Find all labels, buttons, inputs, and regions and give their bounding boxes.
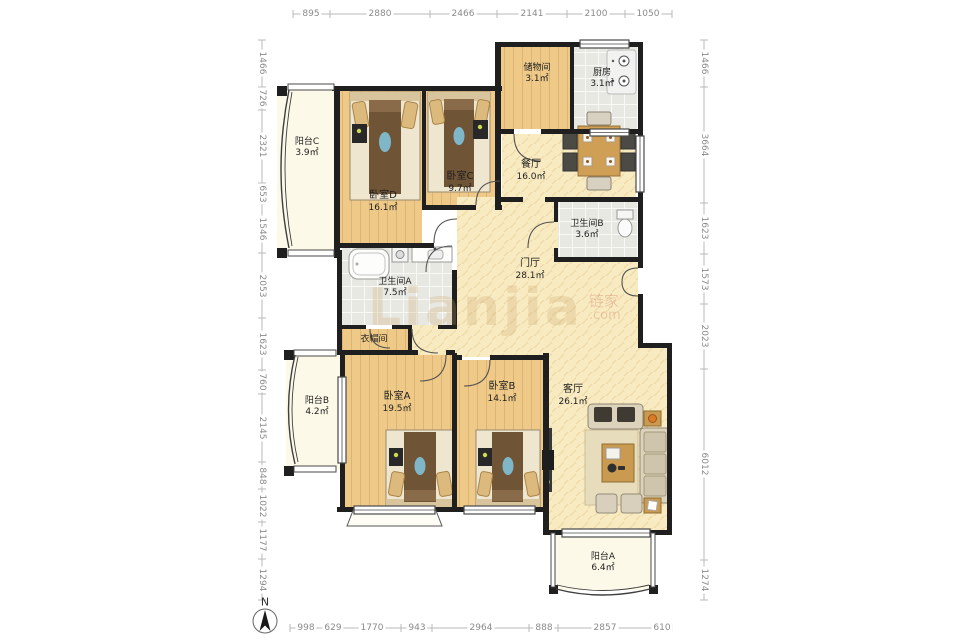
window-icon (464, 506, 535, 514)
window-icon (354, 506, 435, 514)
wall (425, 205, 476, 210)
dimension-label: 2321 (257, 133, 267, 160)
wall (422, 86, 426, 210)
north-label: N (261, 596, 269, 609)
room-label-foyer: 门厅28.1㎡ (515, 258, 544, 282)
dimension-label: 1466 (257, 50, 267, 77)
dimension-label: 2964 (468, 623, 495, 633)
floor-storage (500, 47, 570, 129)
window-icon (580, 40, 629, 48)
wall (337, 350, 418, 355)
room-label-bathroom-b: 卫生间B3.6㎡ (570, 219, 603, 242)
wall (455, 355, 462, 360)
window-icon (288, 250, 334, 256)
wall (490, 355, 548, 360)
wall (438, 325, 457, 329)
wall (570, 42, 574, 134)
room-label-bathroom-a: 卫生间A7.5㎡ (378, 277, 411, 300)
dimension-label: 760 (257, 371, 267, 392)
washing-machine-icon (392, 247, 408, 262)
window-icon (294, 350, 336, 356)
dimension-label: 2880 (367, 9, 394, 19)
room-label-living: 客厅26.1㎡ (558, 384, 587, 408)
dimension-label: 629 (322, 623, 343, 633)
room-label-bedroom-d: 卧室D16.1㎡ (368, 190, 397, 214)
wall (554, 202, 558, 222)
wall (498, 129, 514, 134)
wall (332, 86, 502, 91)
wall-corner (277, 248, 287, 258)
wall (408, 329, 412, 353)
window-icon (294, 466, 336, 472)
room-label-bedroom-a: 卧室A19.5㎡ (382, 391, 411, 415)
dimension-label: 2100 (583, 9, 610, 19)
compass-icon (253, 609, 277, 633)
sliding-door-icon (590, 129, 629, 136)
bed-icon (386, 430, 454, 508)
bathtub-icon (349, 249, 389, 279)
wall (545, 197, 643, 202)
room-label-bedroom-b: 卧室B14.1㎡ (487, 381, 516, 405)
wall (340, 355, 345, 377)
dimension-label: 998 (295, 623, 316, 633)
dimension-label: 1546 (257, 216, 267, 243)
wall (452, 270, 457, 329)
wall (496, 205, 502, 210)
wall (435, 507, 464, 512)
dimension-label: 1274 (699, 567, 709, 594)
wall (340, 463, 345, 509)
dimension-label: 1623 (699, 215, 709, 242)
door-icon (434, 219, 457, 243)
dimension-label: 2145 (257, 415, 267, 442)
dimension-label: 6012 (699, 451, 709, 478)
wall (554, 257, 643, 262)
sink-icon (412, 247, 452, 262)
wall (535, 507, 548, 512)
coffee-table-icon (602, 444, 634, 482)
dimension-label: 2023 (699, 323, 709, 350)
room-label-dining: 餐厅16.0㎡ (516, 159, 545, 183)
room-label-bedroom-c: 卧室C9.7㎡ (447, 171, 474, 195)
wall-corner (284, 350, 294, 360)
floor-plan-page: 阳台C3.9㎡ 卧室D16.1㎡ 卧室C9.7㎡ 储物间3.1㎡ 厨房3.1㎡ … (0, 0, 968, 641)
wall (337, 250, 342, 355)
sliding-door-icon (562, 529, 650, 537)
dimension-label: 1050 (635, 9, 662, 19)
wall (541, 129, 590, 134)
wall (629, 129, 643, 134)
dimension-label: 3664 (699, 132, 709, 159)
wall (337, 507, 354, 512)
dimension-label: 2053 (257, 273, 267, 300)
dimension-label: 1466 (699, 50, 709, 77)
wall (640, 343, 670, 348)
wall (340, 325, 366, 329)
dimension-label: 2141 (519, 9, 546, 19)
wall (638, 294, 643, 348)
room-label-kitchen: 厨房3.1㎡ (590, 68, 613, 91)
bed-icon (476, 430, 540, 508)
dimension-label: 1770 (359, 623, 386, 633)
window-icon (338, 377, 346, 463)
room-label-cloakroom: 衣帽间 (360, 334, 387, 345)
dimension-label: 848 (257, 465, 267, 486)
window-icon (651, 533, 655, 587)
wall (667, 343, 672, 535)
wall (392, 325, 412, 329)
dimension-label: 726 (257, 87, 267, 108)
dimension-label: 1022 (257, 493, 267, 520)
dimension-label: 610 (651, 623, 672, 633)
wall (452, 353, 457, 512)
window-icon (288, 84, 334, 90)
wall-corner (277, 86, 287, 96)
dimension-label: 1177 (257, 527, 267, 554)
toilet-icon (617, 210, 633, 237)
wall (497, 197, 523, 202)
dimension-label: 653 (257, 183, 267, 204)
wall (334, 86, 340, 258)
wall-corner (284, 466, 294, 476)
dimension-label: 1623 (257, 331, 267, 358)
wall (495, 42, 501, 210)
window-icon (551, 533, 555, 587)
room-label-storage: 储物间3.1㎡ (523, 63, 550, 86)
room-label-balcony-a: 阳台A6.4㎡ (591, 552, 615, 575)
window-icon (636, 136, 644, 192)
dimension-label: 2857 (592, 623, 619, 633)
dimension-label: 943 (406, 623, 427, 633)
room-label-balcony-c: 阳台C3.9㎡ (295, 137, 319, 160)
dimension-label: 888 (533, 623, 554, 633)
dimension-label: 895 (300, 9, 321, 19)
dimension-label: 2466 (450, 9, 477, 19)
room-label-balcony-b: 阳台B4.2㎡ (305, 396, 329, 419)
floor-plan-graphic (0, 0, 968, 641)
bed-icon (350, 92, 420, 200)
dimension-label: 1573 (699, 266, 709, 293)
wall (337, 243, 434, 248)
dimension-label: 1294 (257, 567, 267, 594)
